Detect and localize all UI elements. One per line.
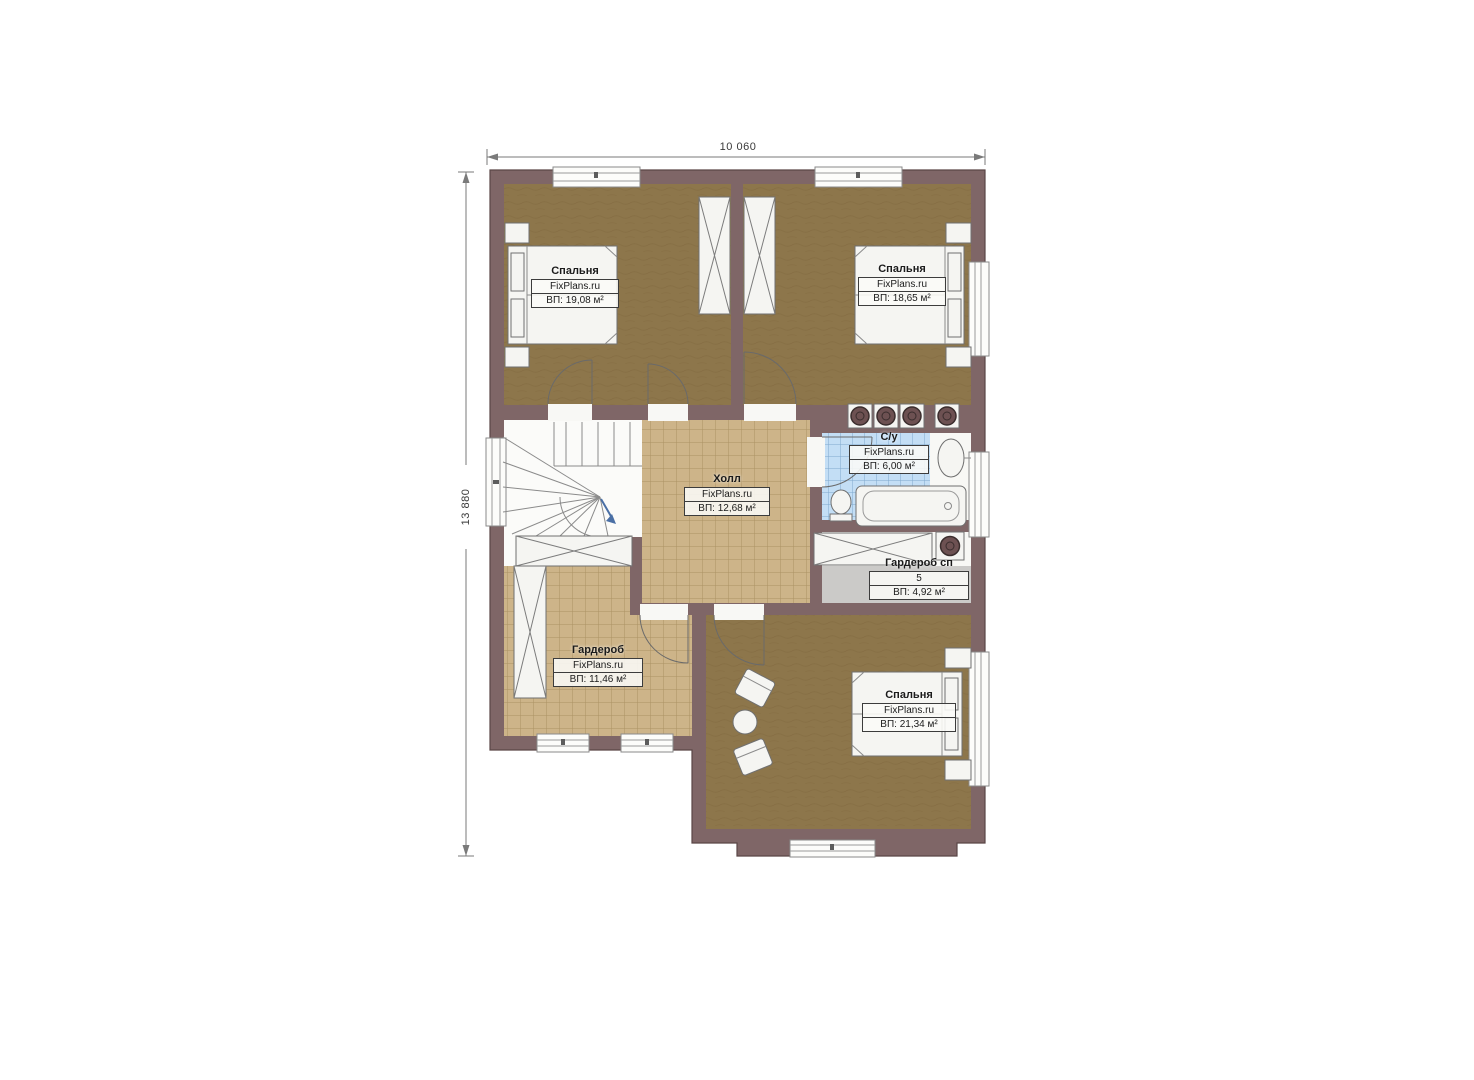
room-label-wardrobe: Гардероб FixPlans.ru ВП: 11,46 м² xyxy=(553,643,643,687)
room-watermark: FixPlans.ru xyxy=(685,488,769,501)
window-wardrobe-1 xyxy=(537,734,589,752)
floor-plan-canvas: Спальня FixPlans.ru ВП: 19,08 м² Спальня… xyxy=(0,0,1474,1080)
window-wardrobe-2 xyxy=(621,734,673,752)
closet-bedroom-tl xyxy=(699,197,730,314)
room-label-bathroom: С/у FixPlans.ru ВП: 6,00 м² xyxy=(849,430,929,474)
window-bedroom-bottom-side xyxy=(969,652,989,786)
room-area: ВП: 12,68 м² xyxy=(685,501,769,515)
room-label-wardrobe-sp: Гардероб сп 5 ВП: 4,92 м² xyxy=(869,556,969,600)
closet-wardrobe xyxy=(514,566,546,698)
room-watermark: FixPlans.ru xyxy=(554,659,642,672)
sink-icon xyxy=(903,407,921,425)
window-stairwell xyxy=(486,438,506,526)
window-bathroom xyxy=(969,452,989,537)
sink-icon xyxy=(877,407,895,425)
room-name: С/у xyxy=(849,430,929,444)
room-area: ВП: 21,34 м² xyxy=(863,717,955,731)
dimension-width-label: 10 060 xyxy=(696,141,780,153)
room-label-bedroom-top-left: Спальня FixPlans.ru ВП: 19,08 м² xyxy=(531,264,619,308)
room-name: Спальня xyxy=(862,688,956,702)
room-label-bedroom-top-right: Спальня FixPlans.ru ВП: 18,65 м² xyxy=(858,262,946,306)
room-area: ВП: 19,08 м² xyxy=(532,293,618,307)
room-name: Холл xyxy=(684,472,770,486)
room-name: Гардероб сп xyxy=(869,556,969,570)
closet-bedroom-tr xyxy=(744,197,775,314)
room-label-bedroom-bottom: Спальня FixPlans.ru ВП: 21,34 м² xyxy=(862,688,956,732)
closet-stair-landing xyxy=(516,536,632,566)
window-bedroom-tl xyxy=(553,167,640,187)
toilet xyxy=(830,490,852,521)
room-name: Спальня xyxy=(531,264,619,278)
room-name: Спальня xyxy=(858,262,946,276)
room-watermark: FixPlans.ru xyxy=(859,278,945,291)
dimension-height-label: 13 880 xyxy=(460,465,472,549)
room-watermark: FixPlans.ru xyxy=(850,446,928,459)
room-area: ВП: 4,92 м² xyxy=(870,585,968,599)
bathtub xyxy=(856,486,966,526)
vanity-sinks xyxy=(848,404,959,428)
window-bedroom-tr xyxy=(815,167,902,187)
room-watermark: FixPlans.ru xyxy=(532,280,618,293)
sink-icon xyxy=(938,407,956,425)
window-bedroom-bottom xyxy=(790,840,875,857)
window-bedroom-tr-side xyxy=(969,262,989,356)
coffee-table xyxy=(733,710,757,734)
room-name: Гардероб xyxy=(553,643,643,657)
sink-icon xyxy=(851,407,869,425)
room-watermark: FixPlans.ru xyxy=(863,704,955,717)
room-area: ВП: 6,00 м² xyxy=(850,459,928,473)
room-label-hall: Холл FixPlans.ru ВП: 12,68 м² xyxy=(684,472,770,516)
room-area: ВП: 11,46 м² xyxy=(554,672,642,686)
room-area: ВП: 18,65 м² xyxy=(859,291,945,305)
floor-plan-drawing xyxy=(0,0,1474,1080)
room-number: 5 xyxy=(870,572,968,585)
